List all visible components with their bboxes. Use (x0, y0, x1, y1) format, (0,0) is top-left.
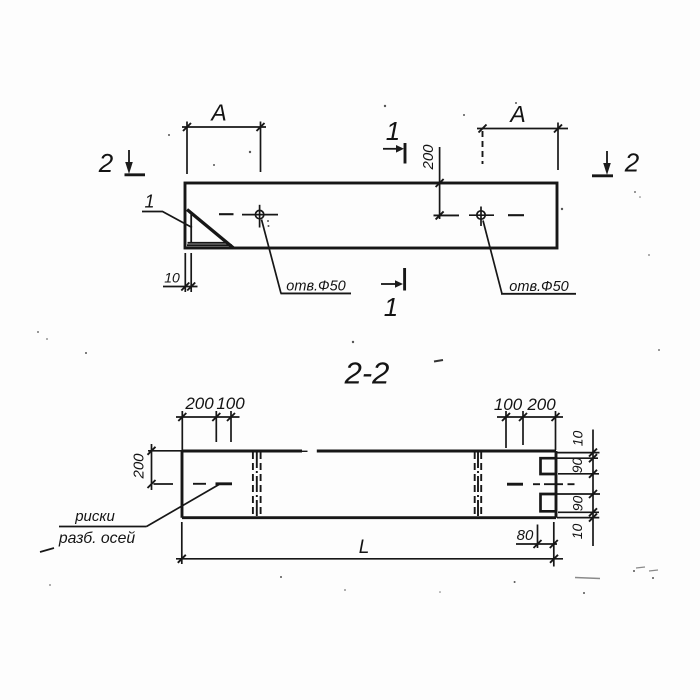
svg-text:200: 200 (184, 394, 214, 413)
svg-text:A: A (508, 101, 525, 127)
svg-text:L: L (359, 537, 370, 558)
svg-text:10: 10 (570, 431, 586, 447)
svg-text:1: 1 (386, 116, 400, 146)
svg-text:разб. осей: разб. осей (58, 530, 136, 547)
svg-text:200: 200 (131, 453, 148, 480)
svg-text:1: 1 (384, 292, 398, 322)
svg-text:A: A (209, 100, 226, 126)
svg-text:90: 90 (569, 458, 585, 474)
svg-text:100: 100 (216, 394, 245, 413)
svg-text:80: 80 (517, 527, 534, 544)
svg-text:2: 2 (624, 148, 640, 178)
svg-text:10: 10 (164, 270, 180, 286)
svg-text:2-2: 2-2 (344, 356, 390, 391)
svg-text:100: 100 (494, 395, 523, 414)
svg-text:отв.Ф50: отв.Ф50 (509, 279, 568, 295)
svg-text:риски: риски (74, 508, 115, 525)
svg-text:200: 200 (420, 144, 437, 171)
svg-text:1: 1 (144, 192, 154, 212)
svg-text:10: 10 (569, 524, 585, 540)
svg-text:90: 90 (570, 496, 586, 512)
svg-text:200: 200 (526, 395, 556, 414)
svg-text:отв.Ф50: отв.Ф50 (286, 279, 345, 295)
svg-text:2: 2 (98, 148, 114, 178)
